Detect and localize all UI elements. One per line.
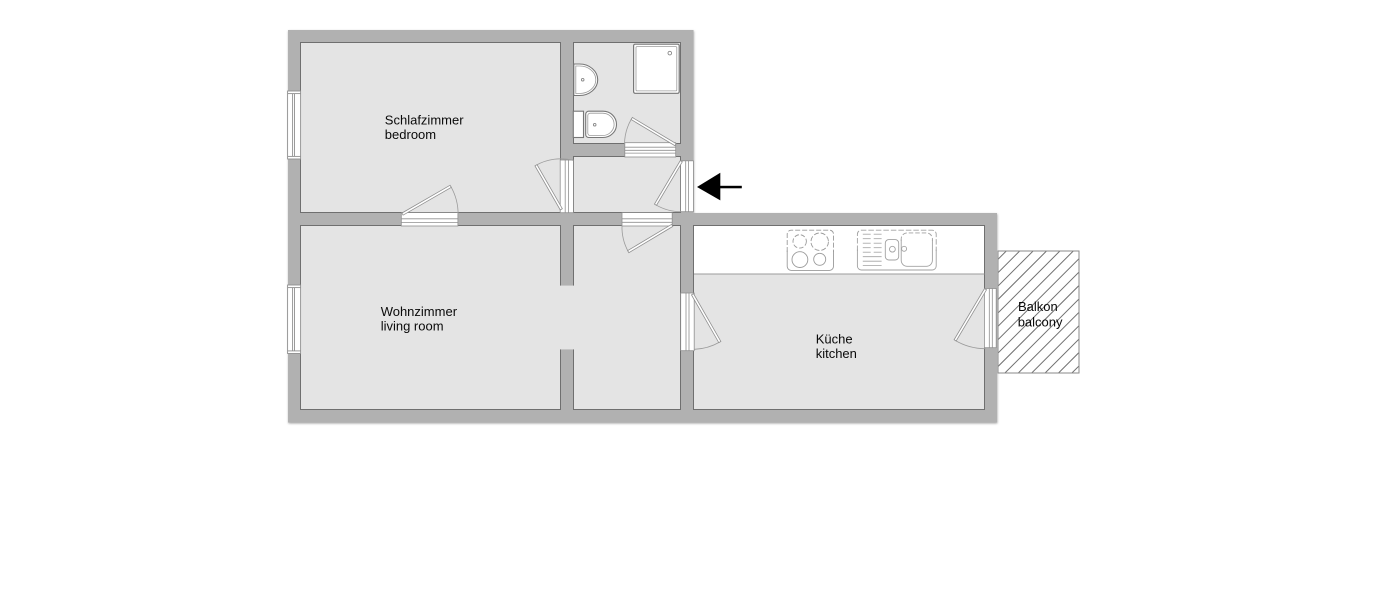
- svg-text:bedroom: bedroom: [385, 127, 436, 142]
- svg-text:Schlafzimmer: Schlafzimmer: [385, 113, 464, 128]
- svg-text:living room: living room: [381, 318, 444, 333]
- svg-text:Balkon: Balkon: [1018, 299, 1058, 314]
- svg-text:kitchen: kitchen: [816, 346, 857, 361]
- svg-text:balcony: balcony: [1018, 315, 1063, 330]
- svg-text:Küche: Küche: [816, 332, 853, 347]
- svg-text:Wohnzimmer: Wohnzimmer: [381, 304, 458, 319]
